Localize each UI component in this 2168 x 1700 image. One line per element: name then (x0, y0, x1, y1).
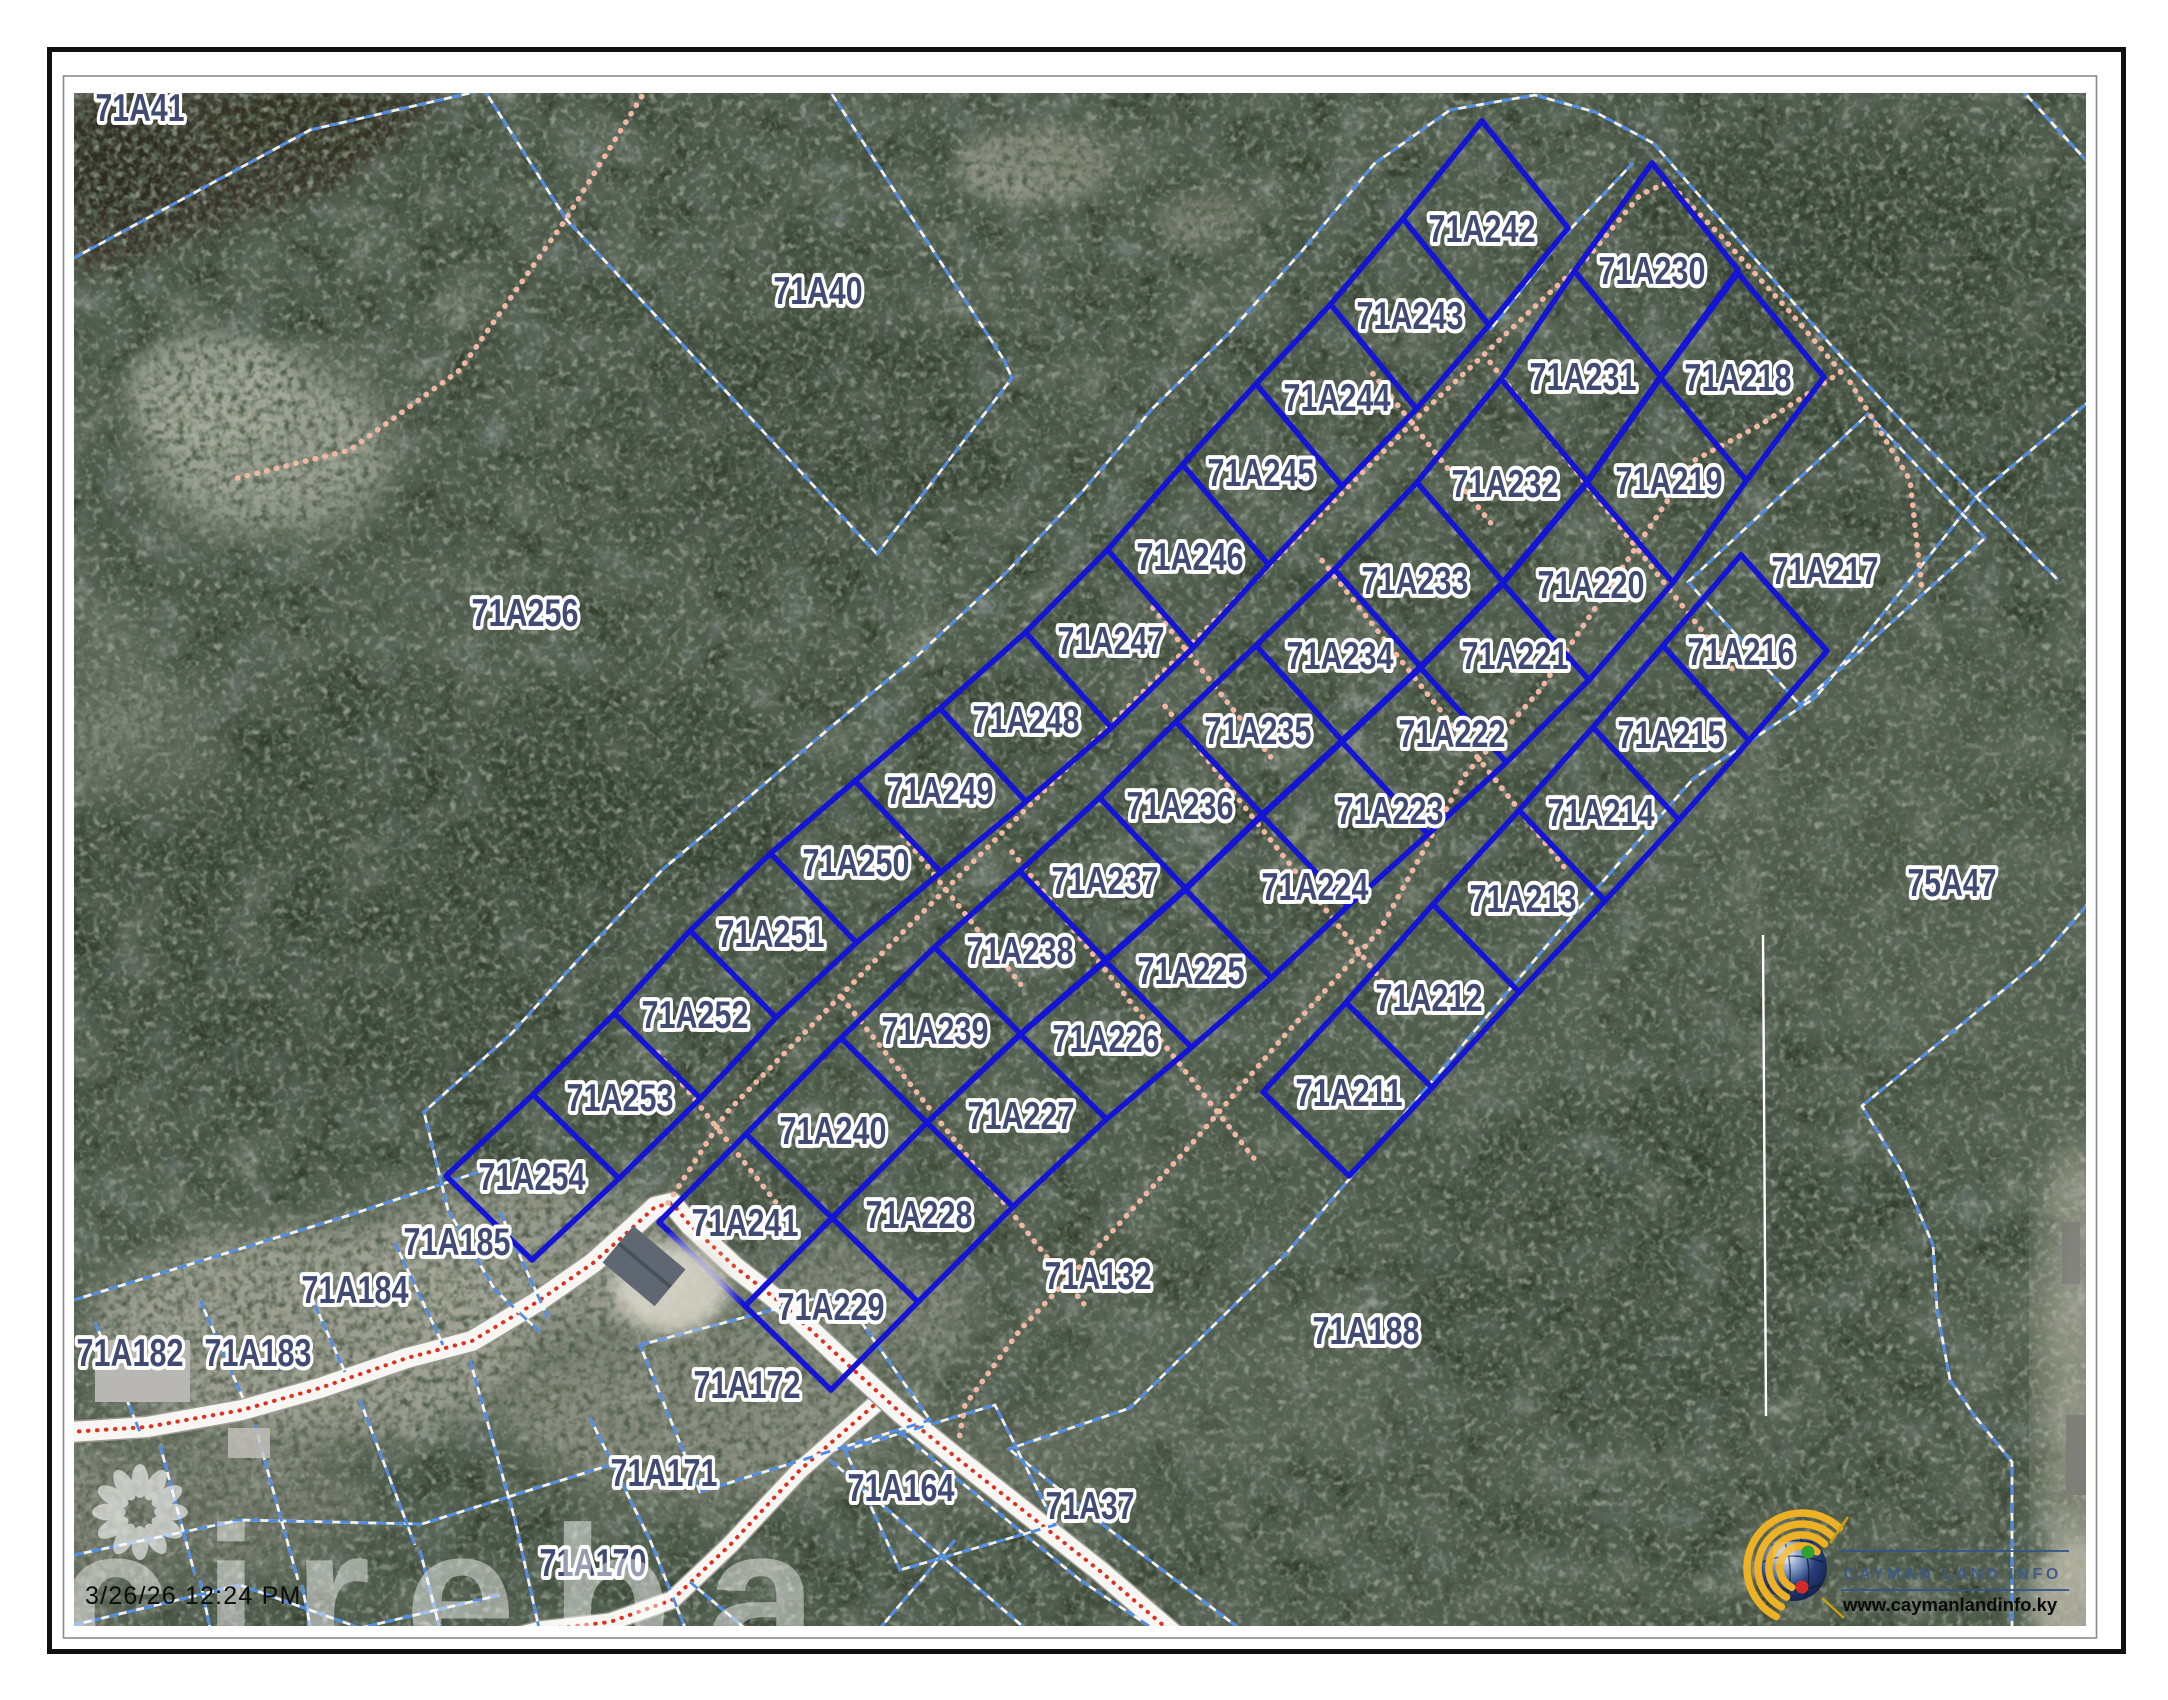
svg-text:71A254: 71A254 (479, 1156, 586, 1199)
svg-text:71A164: 71A164 (848, 1467, 955, 1510)
svg-text:71A234: 71A234 (1287, 635, 1394, 678)
svg-text:71A231: 71A231 (1530, 356, 1637, 399)
svg-text:71A217: 71A217 (1772, 550, 1879, 593)
svg-text:71A216: 71A216 (1688, 631, 1795, 674)
svg-text:71A211: 71A211 (1296, 1072, 1403, 1115)
svg-text:71A184: 71A184 (302, 1269, 409, 1312)
svg-text:71A239: 71A239 (882, 1010, 989, 1053)
svg-text:71A230: 71A230 (1599, 250, 1706, 293)
svg-text:71A223: 71A223 (1337, 790, 1444, 833)
svg-text:71A213: 71A213 (1470, 878, 1577, 921)
svg-text:71A183: 71A183 (205, 1332, 312, 1375)
svg-text:71A256: 71A256 (472, 592, 579, 635)
svg-text:71A248: 71A248 (973, 699, 1080, 742)
svg-text:71A212: 71A212 (1376, 977, 1483, 1020)
svg-text:71A253: 71A253 (567, 1077, 674, 1120)
svg-text:71A235: 71A235 (1205, 710, 1312, 753)
svg-text:71A240: 71A240 (780, 1110, 887, 1153)
svg-text:71A237: 71A237 (1052, 860, 1159, 903)
svg-text:71A246: 71A246 (1137, 536, 1244, 579)
svg-text:71A238: 71A238 (967, 930, 1074, 973)
svg-text:71A232: 71A232 (1452, 463, 1559, 506)
svg-text:71A222: 71A222 (1399, 713, 1506, 756)
svg-text:71A251: 71A251 (718, 913, 825, 956)
svg-text:71A224: 71A224 (1262, 866, 1369, 909)
svg-text:71A219: 71A219 (1616, 460, 1723, 503)
svg-text:71A182: 71A182 (77, 1332, 184, 1375)
svg-text:71A228: 71A228 (866, 1194, 973, 1237)
svg-text:71A185: 71A185 (404, 1221, 511, 1264)
svg-text:71A172: 71A172 (694, 1364, 801, 1407)
svg-text:71A226: 71A226 (1053, 1018, 1160, 1061)
svg-text:71A250: 71A250 (803, 842, 910, 885)
svg-text:71A247: 71A247 (1058, 620, 1165, 663)
svg-text:www.caymanlandinfo.ky: www.caymanlandinfo.ky (1842, 1594, 2058, 1615)
svg-text:71A214: 71A214 (1548, 792, 1655, 835)
svg-text:71A132: 71A132 (1045, 1255, 1152, 1298)
svg-text:CAYMAN LAND INFO: CAYMAN LAND INFO (1844, 1566, 2062, 1583)
svg-text:71A221: 71A221 (1462, 635, 1569, 678)
svg-text:71A252: 71A252 (642, 994, 749, 1037)
svg-text:71A242: 71A242 (1429, 208, 1536, 251)
svg-text:3/26/26 12:24 PM: 3/26/26 12:24 PM (85, 1582, 302, 1610)
svg-text:71A229: 71A229 (778, 1286, 885, 1329)
svg-text:71A227: 71A227 (968, 1095, 1075, 1138)
svg-text:71A41: 71A41 (96, 87, 185, 130)
svg-text:71A37: 71A37 (1046, 1485, 1135, 1528)
svg-text:71A233: 71A233 (1362, 560, 1469, 603)
svg-text:71A244: 71A244 (1284, 377, 1391, 420)
svg-text:71A241: 71A241 (692, 1202, 799, 1245)
svg-text:71A225: 71A225 (1138, 950, 1245, 993)
svg-text:71A218: 71A218 (1685, 357, 1792, 400)
svg-text:75A47: 75A47 (1908, 862, 1997, 905)
svg-text:71A245: 71A245 (1208, 452, 1315, 495)
svg-text:71A220: 71A220 (1538, 564, 1645, 607)
svg-text:71A40: 71A40 (774, 270, 863, 313)
svg-text:71A236: 71A236 (1127, 785, 1234, 828)
svg-text:71A243: 71A243 (1357, 295, 1464, 338)
svg-text:71A249: 71A249 (887, 770, 994, 813)
svg-text:71A188: 71A188 (1313, 1310, 1420, 1353)
svg-text:71A215: 71A215 (1618, 714, 1725, 757)
